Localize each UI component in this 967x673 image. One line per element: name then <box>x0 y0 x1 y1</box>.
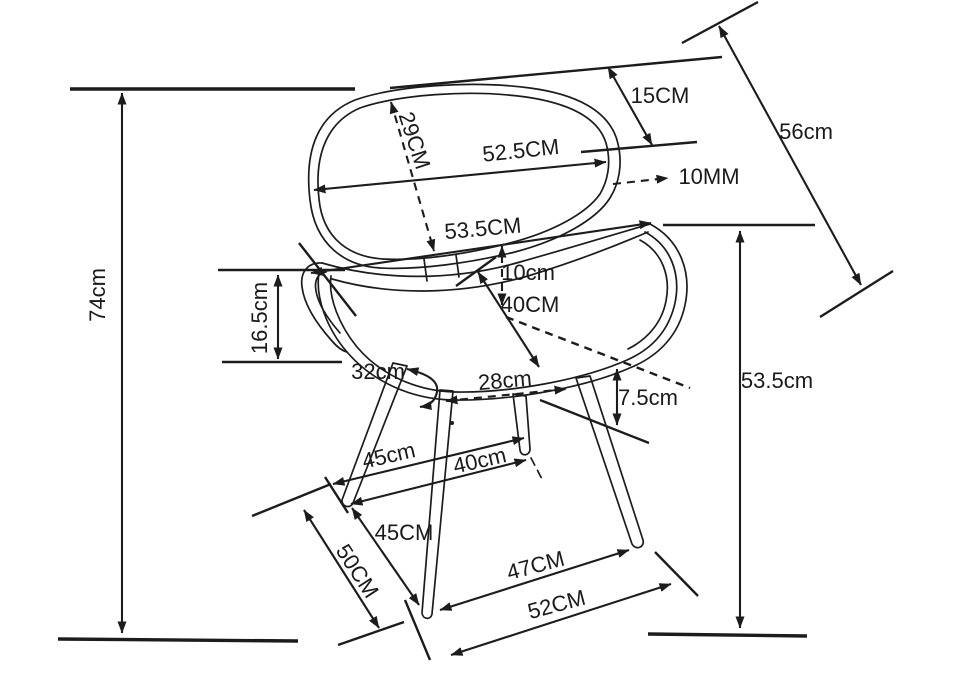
dim-label-53-5cm-height: 53.5cm <box>741 368 813 393</box>
under-seat-fixing-dot <box>450 421 454 425</box>
dimension-lines <box>122 26 861 655</box>
dim-label-52-5cm: 52.5CM <box>481 134 560 167</box>
dim-label-29cm: 29CM <box>394 109 436 173</box>
rear-right-leg-hidden-dashed <box>531 458 543 481</box>
seat-depth-top-tick <box>456 257 496 286</box>
dim-label-45cm-upper: 45cm <box>360 437 418 473</box>
dim-label-40cm-seat-depth: 40CM <box>501 292 560 317</box>
dim-arrow-52-5cm <box>314 162 606 190</box>
dim-label-32cm: 32cm <box>351 359 405 384</box>
diagram-canvas: 74cm 16.5cm 29CM 52.5CM 15CM 56cm 10MM 5… <box>0 0 967 673</box>
rear-leg-lower-tick <box>338 622 404 645</box>
dim-label-40cm-lower: 40cm <box>451 442 509 478</box>
dim-label-52cm: 52CM <box>525 585 588 624</box>
rear-leg-upper-tick <box>252 484 331 516</box>
dim-arrow-10mm <box>613 178 668 184</box>
dim-label-45cm-front-leg: 45CM <box>375 520 434 545</box>
front-left-foot-tick <box>405 600 430 660</box>
chair-dimension-diagram: 74cm 16.5cm 29CM 52.5CM 15CM 56cm 10MM 5… <box>0 0 967 673</box>
offset-15-lower-line <box>581 142 697 152</box>
dim-label-50cm-rear-leg: 50CM <box>331 540 384 603</box>
dim-arrow-40cm-seat-depth <box>478 272 539 367</box>
dim-label-53-5cm-seat-width: 53.5CM <box>443 213 522 245</box>
rear-left-leg <box>342 363 407 507</box>
dimension-labels: 74cm 16.5cm 29CM 52.5CM 15CM 56cm 10MM 5… <box>85 83 833 624</box>
dim-label-10cm: 10cm <box>501 260 555 285</box>
dim-label-28cm: 28cm <box>477 366 533 396</box>
seat-rail-tick-1 <box>424 259 427 281</box>
dim-label-56cm: 56cm <box>779 119 833 144</box>
ground-line-right <box>648 634 807 636</box>
dim-label-7-5cm: 7.5cm <box>618 385 678 410</box>
seat-slope-dashed-line <box>506 317 690 388</box>
dim-label-74cm: 74cm <box>85 268 110 322</box>
dim-label-15cm: 15CM <box>631 83 690 108</box>
ground-line-left <box>58 639 298 641</box>
dim-label-16-5cm: 16.5cm <box>247 282 272 354</box>
back-56-upper-tick <box>682 2 758 43</box>
base-right-tick <box>655 552 698 596</box>
front-left-leg <box>422 390 453 618</box>
reference-lines <box>58 2 893 660</box>
rear-right-leg-hidden <box>513 394 530 455</box>
dim-label-10mm: 10MM <box>678 164 739 189</box>
